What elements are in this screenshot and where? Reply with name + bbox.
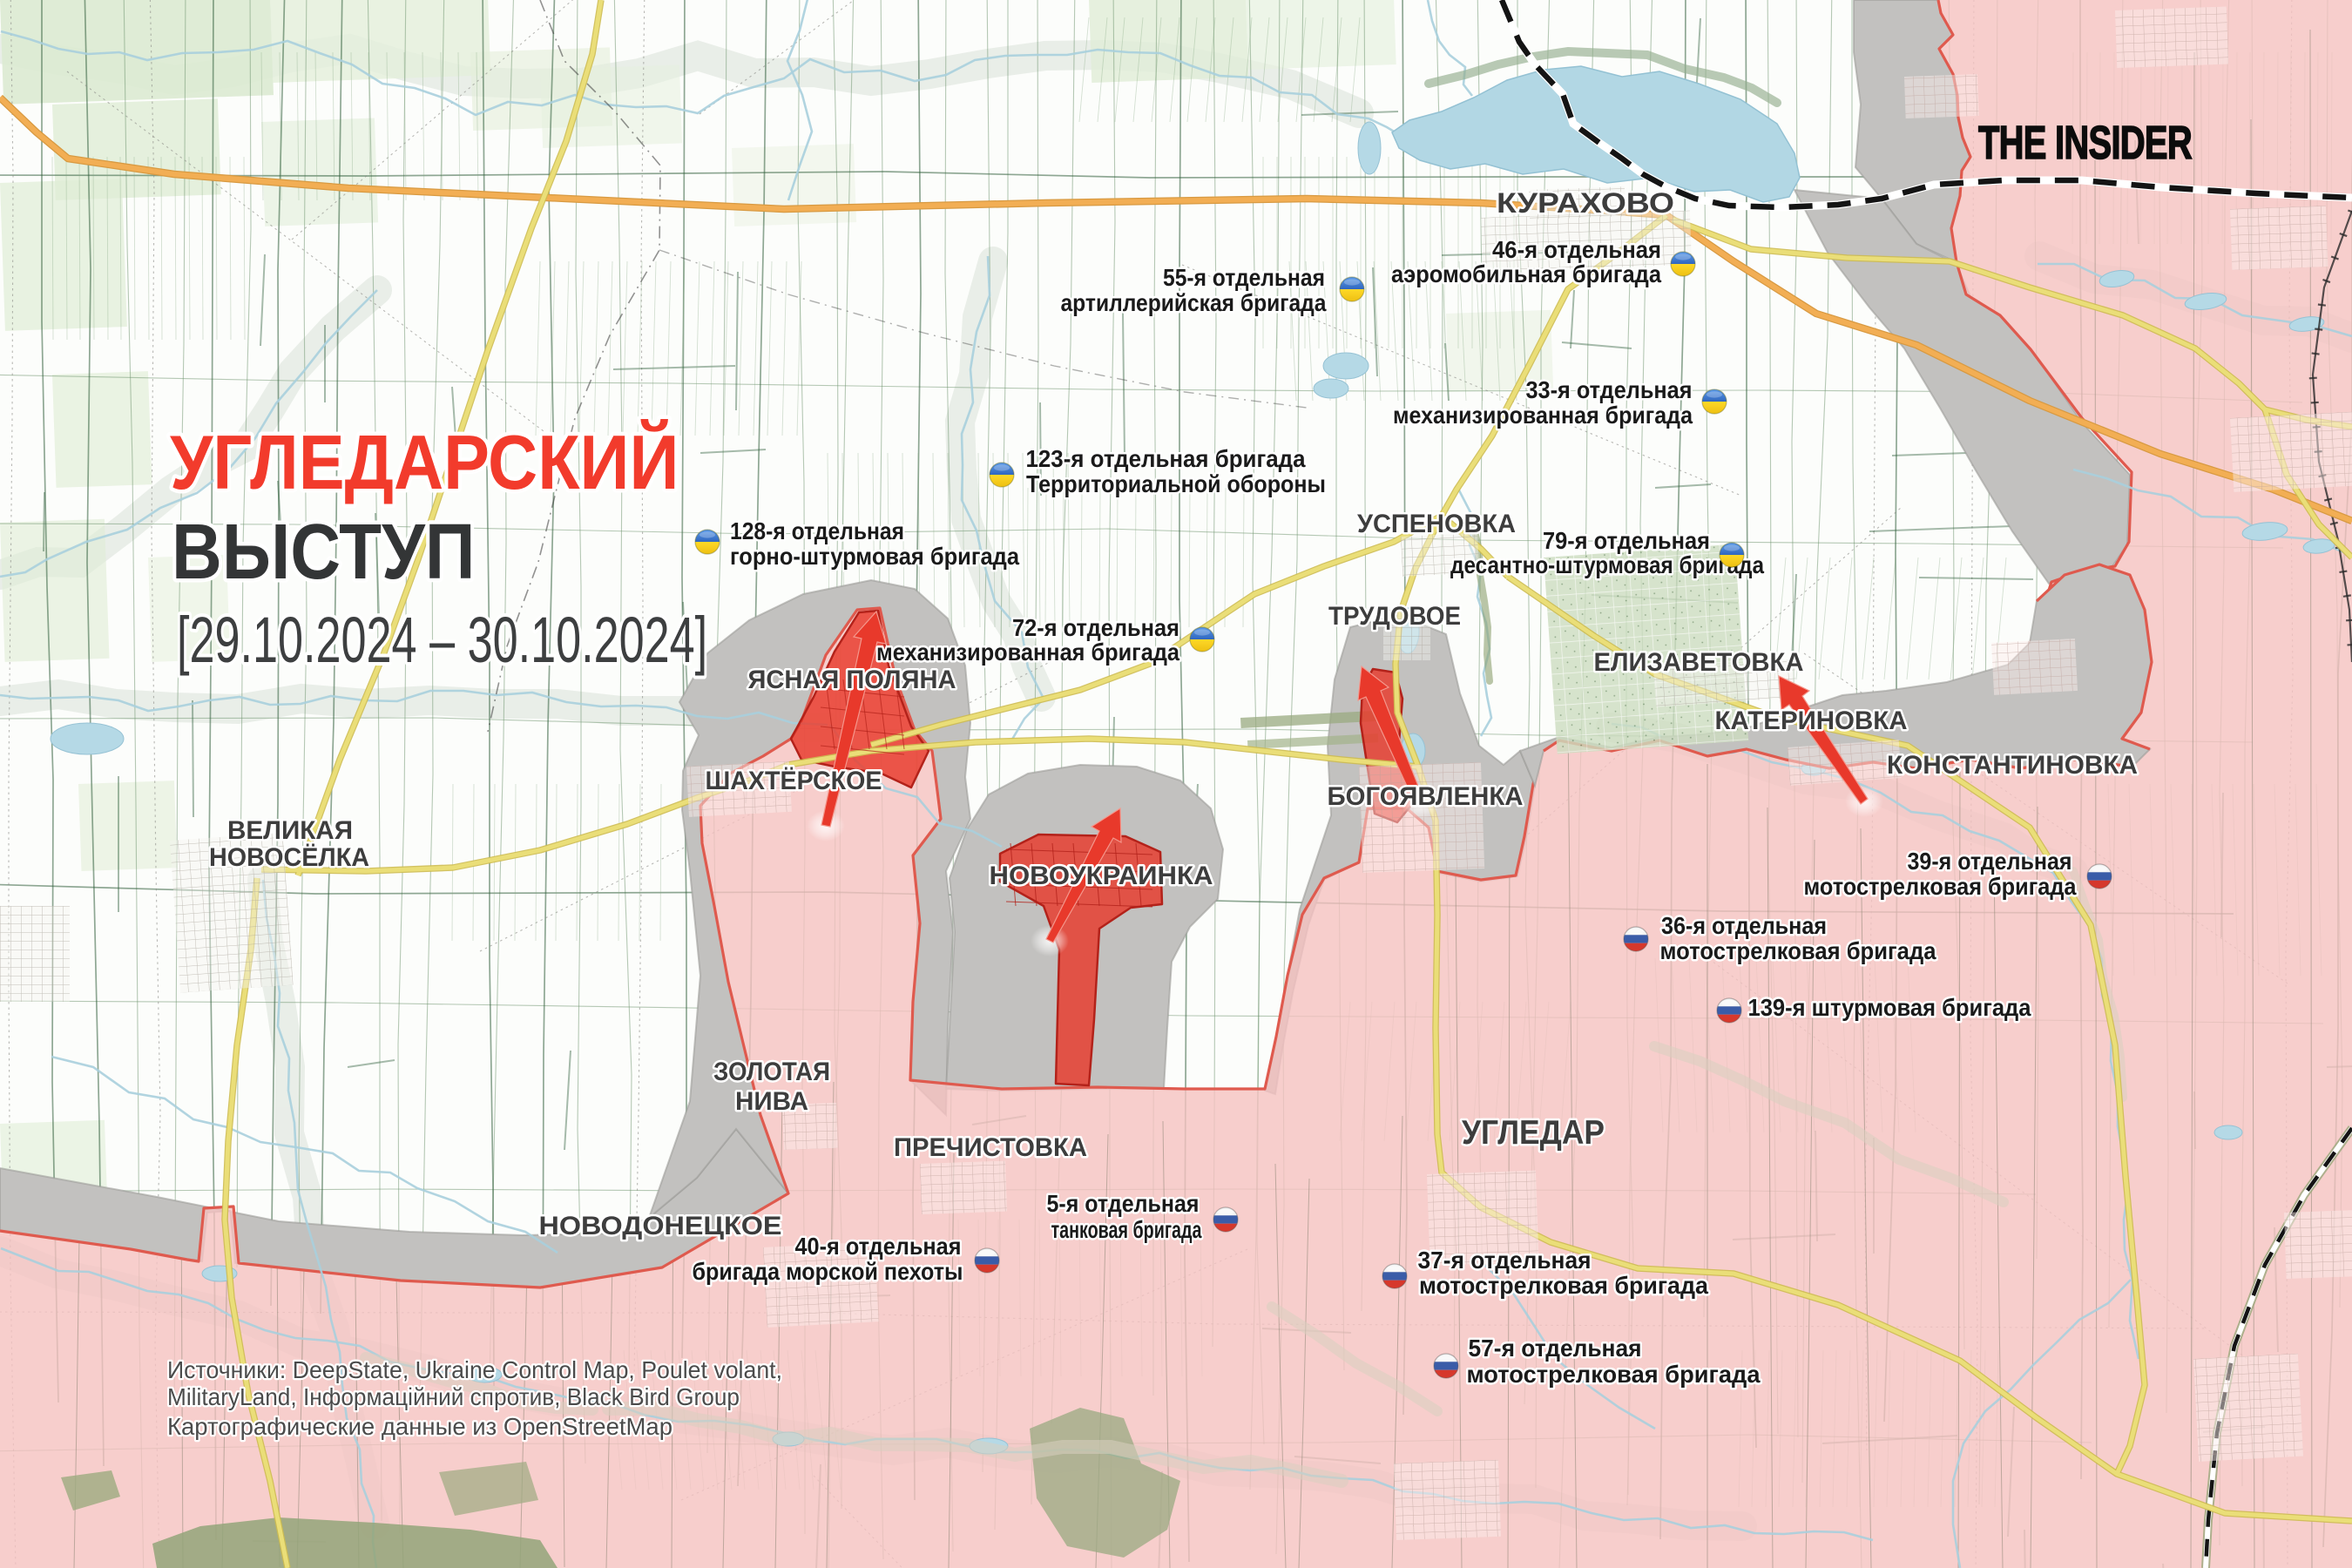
svg-text:танковая бригада: танковая бригада: [1051, 1216, 1202, 1243]
svg-text:36-я отдельная: 36-я отдельная: [1661, 912, 1827, 939]
svg-text:механизированная бригада: механизированная бригада: [1393, 402, 1693, 429]
svg-text:НОВОДОНЕЦКОЕ: НОВОДОНЕЦКОЕ: [539, 1212, 782, 1240]
svg-text:Источники: DeepState, Ukraine: Источники: DeepState, Ukraine Control Ma…: [167, 1356, 782, 1383]
svg-text:КОНСТАНТИНОВКА: КОНСТАНТИНОВКА: [1887, 751, 2138, 780]
svg-text:40-я отдельная: 40-я отдельная: [795, 1233, 962, 1260]
svg-text:72-я отдельная: 72-я отдельная: [1012, 614, 1179, 641]
svg-text:НОВОСЁЛКА: НОВОСЁЛКА: [209, 843, 369, 872]
svg-text:THE INSIDER: THE INSIDER: [1978, 117, 2192, 169]
svg-text:ТРУДОВОЕ: ТРУДОВОЕ: [1328, 602, 1461, 631]
svg-text:ПРЕЧИСТОВКА: ПРЕЧИСТОВКА: [894, 1133, 1087, 1162]
svg-text:мотострелковая бригада: мотострелковая бригада: [1467, 1361, 1761, 1388]
svg-text:Территориальной обороны: Территориальной обороны: [1026, 470, 1326, 497]
svg-text:УГЛЕДАР: УГЛЕДАР: [1462, 1114, 1605, 1152]
svg-text:мотострелковая бригада: мотострелковая бригада: [1804, 873, 2077, 900]
svg-text:УГЛЕДАРСКИЙ: УГЛЕДАРСКИЙ: [170, 419, 679, 505]
svg-text:механизированная бригада: механизированная бригада: [876, 639, 1179, 666]
svg-text:горно-штурмовая бригада: горно-штурмовая бригада: [730, 543, 1019, 570]
svg-text:Картографические данные из Ope: Картографические данные из OpenStreetMap: [167, 1413, 672, 1440]
svg-text:37-я отдельная: 37-я отдельная: [1418, 1247, 1592, 1274]
svg-text:39-я отдельная: 39-я отдельная: [1908, 848, 2072, 875]
svg-text:139-я штурмовая бригада: 139-я штурмовая бригада: [1748, 994, 2031, 1021]
svg-text:УСПЕНОВКА: УСПЕНОВКА: [1357, 510, 1516, 538]
svg-text:123-я отдельная бригада: 123-я отдельная бригада: [1026, 445, 1306, 472]
svg-text:ВЕЛИКАЯ: ВЕЛИКАЯ: [227, 816, 353, 845]
svg-text:НОВОУКРАИНКА: НОВОУКРАИНКА: [990, 862, 1213, 890]
svg-text:КАТЕРИНОВКА: КАТЕРИНОВКА: [1715, 706, 1908, 735]
svg-text:57-я отдельная: 57-я отдельная: [1469, 1335, 1642, 1362]
svg-text:79-я отдельная: 79-я отдельная: [1543, 527, 1710, 554]
svg-text:НИВА: НИВА: [735, 1087, 808, 1116]
svg-text:ВЫСТУП: ВЫСТУП: [172, 509, 475, 596]
svg-text:бригада морской пехоты: бригада морской пехоты: [693, 1258, 963, 1285]
svg-text:46-я отдельная: 46-я отдельная: [1492, 236, 1661, 263]
svg-text:артиллерийская бригада: артиллерийская бригада: [1061, 289, 1327, 316]
svg-text:аэромобильная бригада: аэромобильная бригада: [1391, 260, 1661, 287]
svg-text:ЯСНАЯ ПОЛЯНА: ЯСНАЯ ПОЛЯНА: [748, 666, 956, 694]
svg-text:55-я отдельная: 55-я отдельная: [1163, 264, 1325, 291]
svg-text:ШАХТЁРСКОЕ: ШАХТЁРСКОЕ: [706, 767, 882, 795]
svg-text:мотострелковая бригада: мотострелковая бригада: [1419, 1272, 1708, 1299]
svg-text:[29.10.2024 – 30.10.2024]: [29.10.2024 – 30.10.2024]: [177, 604, 707, 676]
svg-text:КУРАХОВО: КУРАХОВО: [1497, 187, 1674, 219]
svg-text:десантно-штурмовая бригада: десантно-штурмовая бригада: [1450, 551, 1764, 578]
svg-text:ЕЛИЗАВЕТОВКА: ЕЛИЗАВЕТОВКА: [1594, 648, 1804, 677]
svg-text:33-я отдельная: 33-я отдельная: [1526, 376, 1693, 403]
svg-text:ЗОЛОТАЯ: ЗОЛОТАЯ: [713, 1058, 830, 1086]
svg-text:128-я отдельная: 128-я отдельная: [730, 517, 904, 544]
svg-text:мотострелковая бригада: мотострелковая бригада: [1660, 937, 1936, 964]
svg-text:5-я отдельная: 5-я отдельная: [1047, 1190, 1200, 1217]
svg-text:MilitaryLand, Інформаційний сп: MilitaryLand, Інформаційний спротив, Bla…: [167, 1383, 740, 1410]
svg-text:БОГОЯВЛЕНКА: БОГОЯВЛЕНКА: [1328, 782, 1524, 811]
